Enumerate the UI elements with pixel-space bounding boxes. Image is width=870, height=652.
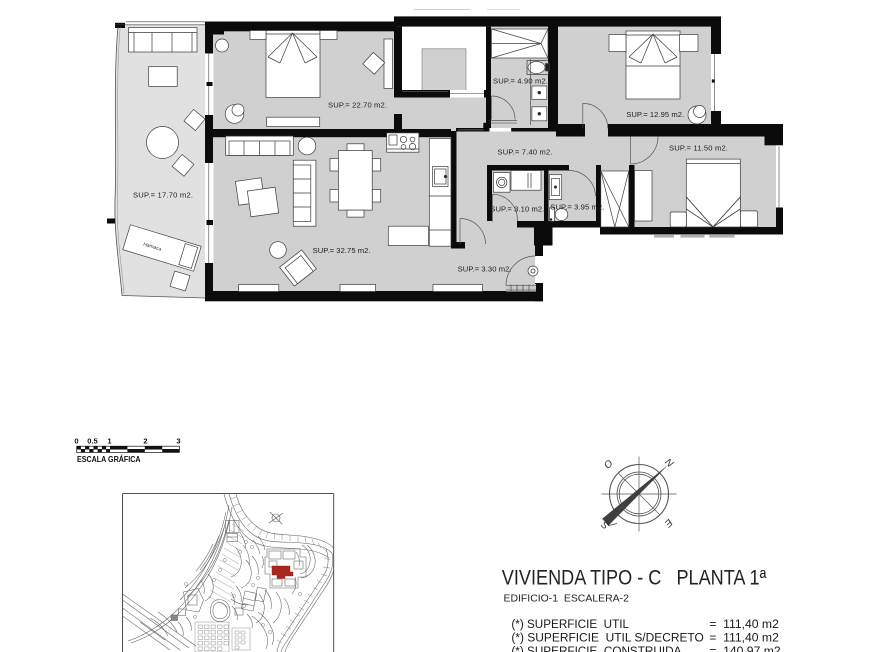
svg-text:= 111,40 m2: = 111,40 m2 (709, 617, 779, 631)
svg-text:3: 3 (176, 437, 180, 446)
svg-text:SUP.= 4.90 m2.: SUP.= 4.90 m2. (493, 76, 548, 85)
svg-text:(*) SUPERFICIE CONSTRUIDA: (*) SUPERFICIE CONSTRUIDA (511, 644, 682, 652)
svg-text:SUP.= 32.75 m2.: SUP.= 32.75 m2. (313, 246, 371, 255)
svg-text:SUP.= 11.50 m2.: SUP.= 11.50 m2. (669, 144, 728, 153)
svg-text:EDIFICIO-1 ESCALERA-2: EDIFICIO-1 ESCALERA-2 (504, 594, 630, 605)
svg-text:SUP.= 17.70 m2.: SUP.= 17.70 m2. (133, 190, 193, 199)
svg-text:(*) SUPERFICIE UTIL S/DECRETO: (*) SUPERFICIE UTIL S/DECRETO (511, 630, 703, 644)
svg-text:SUP.= 22.70 m2.: SUP.= 22.70 m2. (328, 101, 387, 110)
svg-text:SUP.= 7.40 m2.: SUP.= 7.40 m2. (498, 148, 553, 157)
svg-text:ESCALA GRÁFICA: ESCALA GRÁFICA (77, 455, 141, 464)
svg-text:VIVIENDA TIPO - C PLANTA 1ª: VIVIENDA TIPO - C PLANTA 1ª (502, 567, 767, 590)
svg-text:0: 0 (74, 437, 78, 446)
svg-text:(*) SUPERFICIE UTIL: (*) SUPERFICIE UTIL (511, 617, 629, 631)
svg-text:= 111,40 m2: = 111,40 m2 (709, 630, 779, 644)
svg-text:SUP.= 12.95 m2.: SUP.= 12.95 m2. (626, 110, 684, 119)
svg-text:2: 2 (143, 437, 147, 446)
svg-text:0.5: 0.5 (87, 437, 98, 446)
svg-text:= 140,97 m2: = 140,97 m2 (709, 644, 781, 652)
svg-text:SUP.= 3.30 m2.: SUP.= 3.30 m2. (458, 264, 512, 273)
svg-text:SUP.= 3.95 m2.: SUP.= 3.95 m2. (550, 203, 604, 212)
svg-text:SUP.= 3.10 m2.: SUP.= 3.10 m2. (490, 205, 544, 214)
